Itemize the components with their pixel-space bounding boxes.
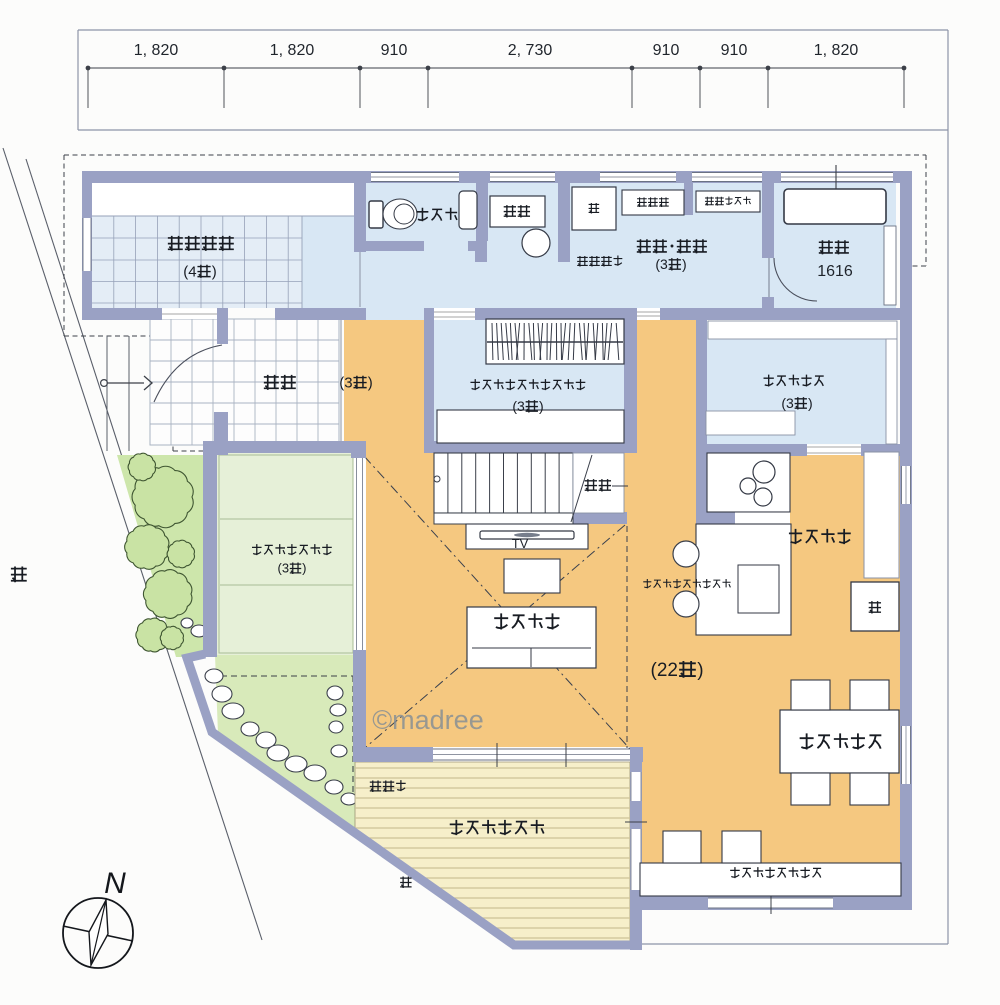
svg-text:): ) [302,561,306,576]
svg-text:(3: (3 [781,395,794,411]
svg-text:): ) [808,395,813,411]
svg-text:©madree: ©madree [372,705,483,735]
svg-text:): ) [212,263,217,280]
svg-text:910: 910 [381,42,408,59]
svg-text:1, 820: 1, 820 [814,42,859,59]
svg-text:910: 910 [653,42,680,59]
svg-text:(22: (22 [651,660,678,681]
svg-text:910: 910 [721,42,748,59]
svg-text:1, 820: 1, 820 [270,42,315,59]
svg-text:): ) [368,374,373,391]
svg-text:(3: (3 [278,561,290,576]
svg-text:(3: (3 [339,374,352,391]
svg-text:): ) [539,398,544,414]
svg-text:1616: 1616 [817,263,853,280]
svg-text:TV: TV [512,536,529,551]
svg-text:(3: (3 [512,398,525,414]
svg-text:(3: (3 [655,256,668,272]
svg-text:): ) [682,256,687,272]
svg-text:N: N [104,867,126,900]
svg-text:): ) [697,660,703,681]
svg-text:2, 730: 2, 730 [508,42,553,59]
svg-text:(4: (4 [183,263,196,280]
svg-text:1, 820: 1, 820 [134,42,179,59]
